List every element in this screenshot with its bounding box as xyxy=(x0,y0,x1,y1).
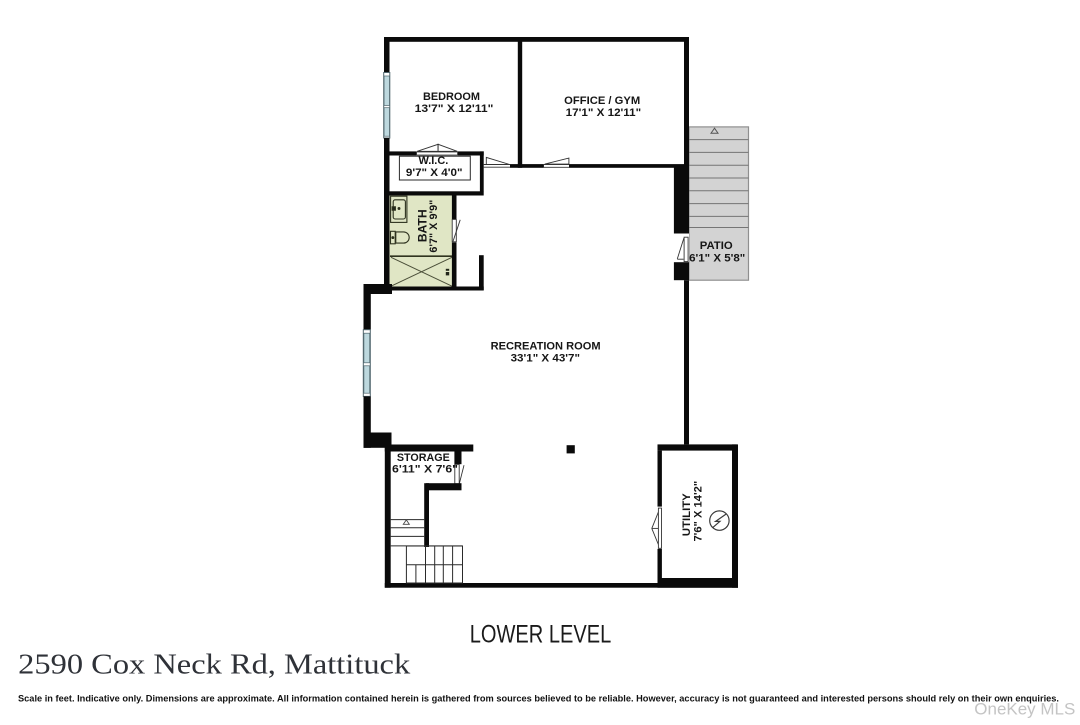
svg-text:UTILITY: UTILITY xyxy=(681,493,693,536)
svg-text:13'7" X 12'11": 13'7" X 12'11" xyxy=(415,103,494,115)
svg-text:BEDROOM: BEDROOM xyxy=(423,91,480,103)
svg-text:6'1" X 5'8": 6'1" X 5'8" xyxy=(689,253,745,265)
svg-text:Scale in feet. Indicative only: Scale in feet. Indicative only. Dimensio… xyxy=(18,694,1059,705)
svg-text:17'1" X 12'11": 17'1" X 12'11" xyxy=(566,107,642,119)
svg-text:OneKey MLS: OneKey MLS xyxy=(974,700,1075,719)
svg-text:STORAGE: STORAGE xyxy=(397,452,450,464)
svg-text:PATIO: PATIO xyxy=(700,240,733,252)
svg-text:6'11" X 7'6": 6'11" X 7'6" xyxy=(392,463,458,475)
svg-text:9'7" X 4'0": 9'7" X 4'0" xyxy=(406,167,463,179)
svg-text:2590 Cox Neck Rd, Mattituck: 2590 Cox Neck Rd, Mattituck xyxy=(18,649,411,681)
svg-text:6'7" X 9'9": 6'7" X 9'9" xyxy=(428,200,440,253)
svg-text:W.I.C.: W.I.C. xyxy=(419,155,449,167)
svg-text:33'1" X 43'7": 33'1" X 43'7" xyxy=(511,352,580,364)
svg-text:RECREATION ROOM: RECREATION ROOM xyxy=(491,341,601,353)
svg-text:OFFICE / GYM: OFFICE / GYM xyxy=(564,95,640,107)
svg-text:LOWER LEVEL: LOWER LEVEL xyxy=(470,621,612,649)
svg-text:7'6" X 14'2": 7'6" X 14'2" xyxy=(692,481,704,542)
